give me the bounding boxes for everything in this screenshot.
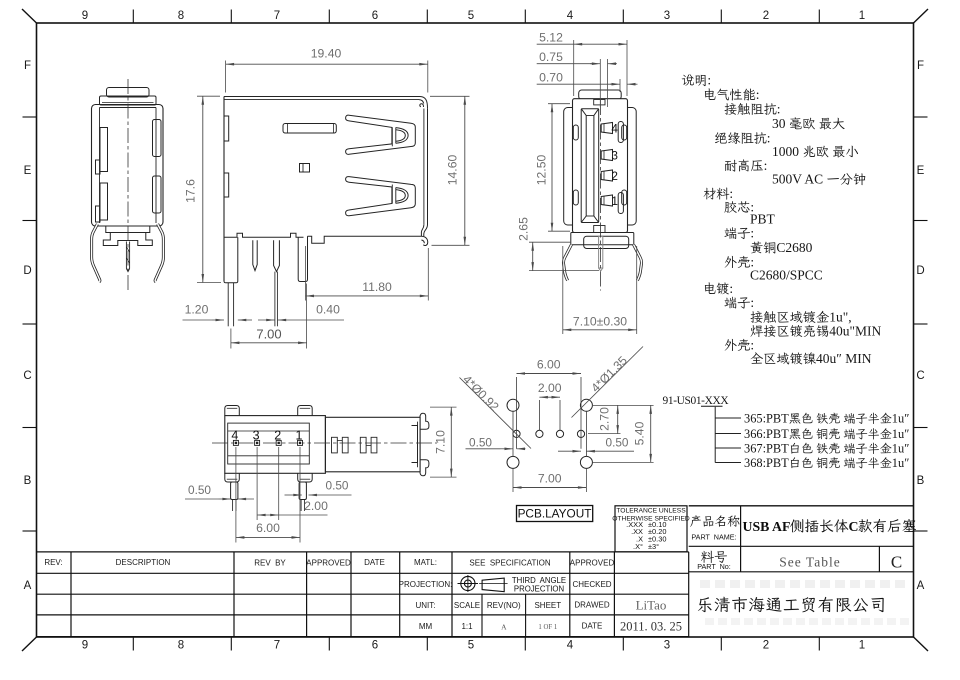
svg-text:REV(NO): REV(NO) bbox=[487, 601, 521, 610]
svg-text:DATE: DATE bbox=[364, 558, 385, 567]
svg-text:MATL:: MATL: bbox=[414, 558, 437, 567]
svg-text:5.40: 5.40 bbox=[633, 421, 647, 445]
svg-text:C: C bbox=[849, 519, 859, 534]
svg-text:2: 2 bbox=[274, 429, 281, 443]
svg-text:.X°: .X° bbox=[633, 542, 643, 551]
svg-text::: : bbox=[750, 295, 754, 310]
svg-text:0.75: 0.75 bbox=[539, 50, 563, 64]
svg-text:2: 2 bbox=[763, 640, 769, 652]
svg-text:PCB.LAYOUT: PCB.LAYOUT bbox=[518, 506, 592, 520]
svg-text:11.80: 11.80 bbox=[362, 280, 392, 294]
svg-text:D: D bbox=[23, 265, 31, 277]
svg-text:0.70: 0.70 bbox=[539, 71, 563, 85]
svg-text::: : bbox=[707, 73, 711, 88]
svg-text:7.10±0.30: 7.10±0.30 bbox=[573, 315, 627, 329]
svg-text:1: 1 bbox=[859, 640, 865, 652]
svg-text::: : bbox=[777, 102, 781, 117]
svg-text:1 OF 1: 1 OF 1 bbox=[538, 624, 557, 631]
svg-text:2: 2 bbox=[763, 10, 769, 22]
svg-text:40u"MIN: 40u"MIN bbox=[829, 324, 881, 339]
svg-text::: : bbox=[750, 338, 754, 353]
svg-text::: : bbox=[764, 158, 768, 173]
svg-text:APPROVED: APPROVED bbox=[570, 559, 615, 568]
svg-text:2: 2 bbox=[611, 169, 618, 183]
svg-text:A: A bbox=[501, 623, 507, 632]
svg-text:2.70: 2.70 bbox=[598, 407, 612, 431]
svg-text:A: A bbox=[24, 580, 32, 592]
svg-text:0.50: 0.50 bbox=[326, 479, 349, 493]
svg-text:5: 5 bbox=[468, 640, 474, 652]
svg-text:3: 3 bbox=[611, 149, 618, 163]
svg-text:B: B bbox=[24, 475, 32, 487]
svg-text::: : bbox=[756, 87, 760, 102]
svg-text:PART No:: PART No: bbox=[697, 562, 731, 571]
svg-text:See Table: See Table bbox=[779, 555, 840, 570]
svg-text:2011. 03. 25: 2011. 03. 25 bbox=[620, 620, 682, 634]
svg-text:1u″: 1u″ bbox=[892, 442, 910, 456]
svg-text:6: 6 bbox=[372, 10, 378, 22]
svg-text:1u″: 1u″ bbox=[892, 456, 910, 470]
svg-text:368:PBT: 368:PBT bbox=[744, 456, 789, 470]
svg-text:D: D bbox=[916, 265, 924, 277]
svg-text:14.60: 14.60 bbox=[446, 155, 460, 186]
svg-text:1:1: 1:1 bbox=[461, 622, 473, 631]
svg-text:7: 7 bbox=[274, 10, 280, 22]
svg-text:7.00: 7.00 bbox=[256, 327, 281, 342]
svg-text:0.50: 0.50 bbox=[188, 483, 211, 497]
svg-text:PBT: PBT bbox=[750, 212, 776, 227]
svg-text:8: 8 bbox=[178, 640, 184, 652]
svg-text:1: 1 bbox=[611, 194, 618, 208]
svg-text::: : bbox=[729, 281, 733, 296]
svg-text:4: 4 bbox=[567, 640, 574, 652]
svg-text:PROJECTION:: PROJECTION: bbox=[399, 580, 453, 589]
svg-text:7.00: 7.00 bbox=[538, 472, 562, 486]
svg-text:E: E bbox=[24, 165, 32, 177]
svg-text:1.20: 1.20 bbox=[185, 303, 209, 317]
svg-text:A: A bbox=[917, 580, 925, 592]
svg-text:C2680: C2680 bbox=[776, 240, 812, 255]
svg-text:3: 3 bbox=[664, 10, 670, 22]
svg-text:F: F bbox=[24, 60, 31, 72]
svg-text:3: 3 bbox=[253, 429, 260, 443]
svg-text:5.12: 5.12 bbox=[539, 31, 563, 45]
svg-text:4: 4 bbox=[611, 122, 618, 136]
svg-text:365:PBT: 365:PBT bbox=[744, 412, 789, 426]
svg-text:C: C bbox=[23, 370, 31, 382]
svg-text:C: C bbox=[916, 370, 924, 382]
svg-text:B: B bbox=[917, 475, 925, 487]
svg-text:1000: 1000 bbox=[772, 144, 802, 159]
svg-text:7.10: 7.10 bbox=[433, 430, 447, 454]
svg-text:SCALE: SCALE bbox=[454, 601, 480, 610]
svg-text:1: 1 bbox=[296, 429, 303, 443]
svg-text:C: C bbox=[891, 553, 902, 572]
svg-text::: : bbox=[750, 226, 754, 241]
svg-text:1u″: 1u″ bbox=[892, 427, 910, 441]
svg-text:PROJECTION: PROJECTION bbox=[514, 585, 564, 594]
svg-text:C2680/SPCC: C2680/SPCC bbox=[750, 268, 823, 283]
svg-text:TOLERANCE UNLESS: TOLERANCE UNLESS bbox=[616, 508, 686, 515]
svg-text:91-US01-XXX: 91-US01-XXX bbox=[663, 395, 730, 407]
svg-text::: : bbox=[767, 131, 771, 146]
svg-text:1: 1 bbox=[859, 10, 865, 22]
svg-text:17.6: 17.6 bbox=[184, 179, 198, 203]
svg-text:367:PBT: 367:PBT bbox=[744, 442, 789, 456]
svg-text:1u″: 1u″ bbox=[892, 412, 910, 426]
svg-text:SEE SPECIFICATION: SEE SPECIFICATION bbox=[469, 559, 550, 568]
svg-text:CHECKED: CHECKED bbox=[572, 580, 611, 589]
svg-text:366:PBT: 366:PBT bbox=[744, 427, 789, 441]
svg-text:40u″ MIN: 40u″ MIN bbox=[816, 351, 872, 366]
svg-text:19.40: 19.40 bbox=[311, 47, 342, 61]
svg-text:5: 5 bbox=[468, 10, 474, 22]
svg-text:1u",: 1u", bbox=[829, 310, 851, 325]
svg-text:MM: MM bbox=[419, 622, 433, 631]
svg-text:2.65: 2.65 bbox=[517, 217, 531, 241]
svg-text:30: 30 bbox=[772, 116, 789, 131]
svg-text:2.00: 2.00 bbox=[538, 381, 562, 395]
svg-text:DRAWED: DRAWED bbox=[574, 601, 609, 610]
svg-text:9: 9 bbox=[82, 640, 88, 652]
svg-text:APPROVED: APPROVED bbox=[306, 559, 351, 568]
svg-text:LiTao: LiTao bbox=[636, 598, 667, 613]
svg-text:7: 7 bbox=[274, 640, 280, 652]
svg-text:DESCRIPTION: DESCRIPTION bbox=[116, 558, 171, 567]
svg-text:0.50: 0.50 bbox=[606, 436, 629, 450]
svg-text::: : bbox=[729, 186, 733, 201]
svg-text:12.50: 12.50 bbox=[535, 155, 549, 186]
svg-text:E: E bbox=[917, 165, 925, 177]
svg-text:USB AF: USB AF bbox=[743, 519, 791, 534]
svg-text:REV BY: REV BY bbox=[254, 559, 286, 568]
svg-text:PART NAME:: PART NAME: bbox=[691, 533, 736, 542]
svg-text:6.00: 6.00 bbox=[256, 521, 280, 535]
svg-text:DATE: DATE bbox=[582, 622, 603, 631]
svg-text:4: 4 bbox=[567, 10, 574, 22]
svg-text:F: F bbox=[917, 60, 924, 72]
svg-text:0.40: 0.40 bbox=[316, 303, 340, 317]
svg-text:500V AC: 500V AC bbox=[772, 172, 827, 187]
svg-text:3: 3 bbox=[664, 640, 670, 652]
svg-text:UNIT:: UNIT: bbox=[416, 601, 436, 610]
svg-text:REV:: REV: bbox=[44, 558, 62, 567]
svg-text:6: 6 bbox=[372, 640, 378, 652]
svg-text:4: 4 bbox=[231, 429, 238, 443]
svg-text:SHEET: SHEET bbox=[534, 601, 561, 610]
svg-text:2.00: 2.00 bbox=[304, 499, 328, 513]
svg-text:±3°: ±3° bbox=[648, 542, 659, 551]
svg-text:9: 9 bbox=[82, 10, 88, 22]
svg-text:6.00: 6.00 bbox=[537, 358, 561, 372]
svg-text:8: 8 bbox=[178, 10, 184, 22]
svg-text:0.50: 0.50 bbox=[469, 436, 492, 450]
